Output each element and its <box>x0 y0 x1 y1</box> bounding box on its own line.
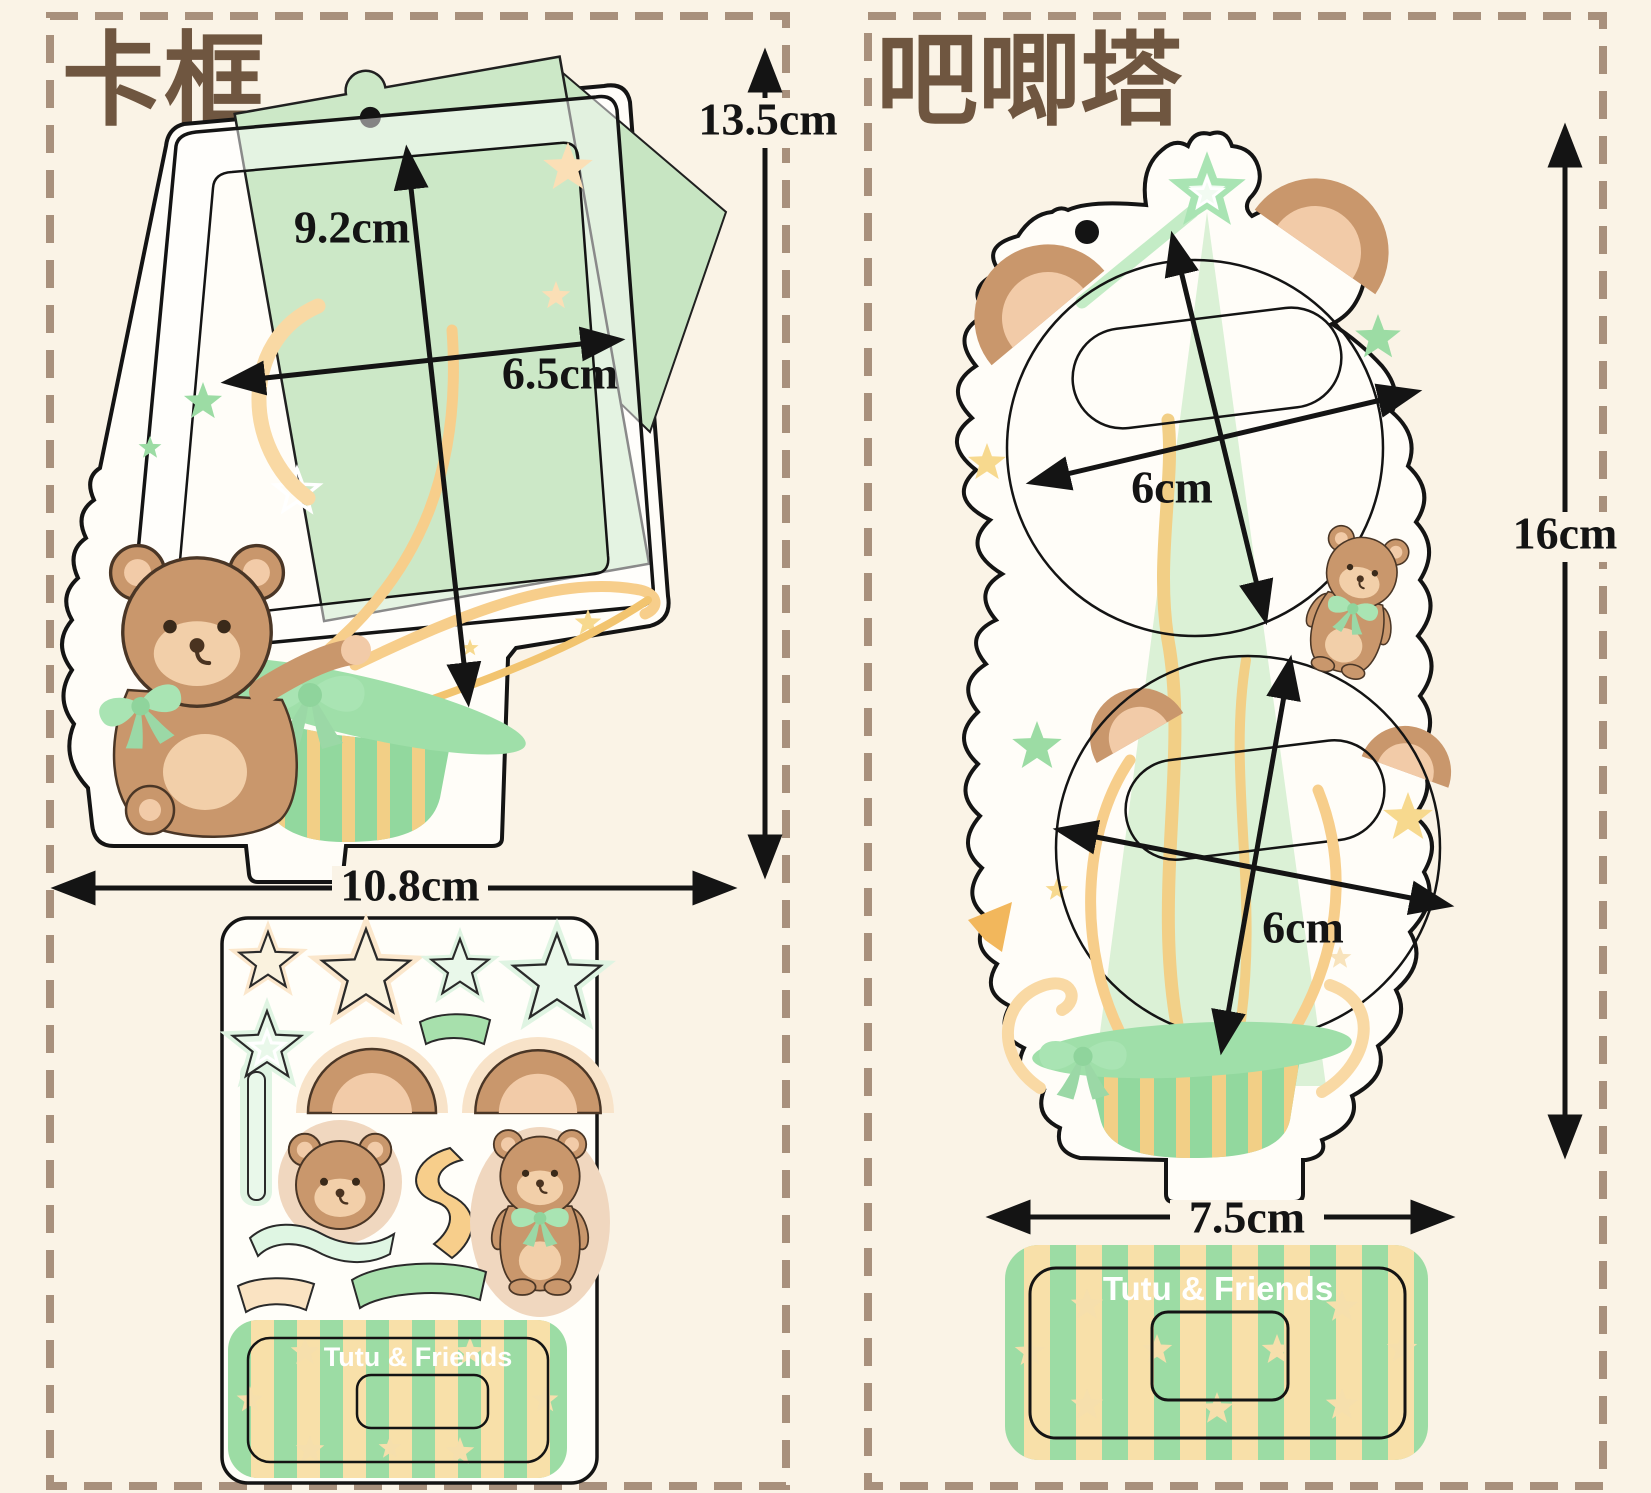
dim-label-bottom-badge: 6cm <box>1262 902 1344 953</box>
diagram-svg: 卡框 <box>0 0 1651 1493</box>
total-height-dimension: 13.5cm <box>698 55 837 872</box>
right-panel-title: 吧唧塔 <box>876 26 1183 139</box>
hanging-hole-icon <box>1075 220 1099 244</box>
dim-label-tower-height: 16cm <box>1513 508 1618 559</box>
dim-label-inner-width: 6.5cm <box>502 348 618 399</box>
dim-label-inner-height: 9.2cm <box>294 202 410 253</box>
sheet-big-bear <box>470 1127 610 1317</box>
product-spec-diagram: 卡框 <box>0 0 1651 1493</box>
dim-label-total-width: 10.8cm <box>340 860 479 911</box>
card-frame-standee: 9.2cm 6.5cm <box>62 37 726 882</box>
dim-label-tower-width: 7.5cm <box>1189 1192 1305 1243</box>
total-width-dimension: 10.8cm <box>58 860 730 912</box>
sticker-sheet: Tutu & Friends <box>219 913 616 1483</box>
dim-label-top-badge: 6cm <box>1131 462 1213 513</box>
dim-label-total-height: 13.5cm <box>698 94 837 145</box>
base-brand-text-left: Tutu & Friends <box>324 1342 513 1372</box>
left-panel: 卡框 <box>50 16 838 1486</box>
base-plate-right: Tutu & Friends <box>1005 1245 1428 1460</box>
base-brand-text-right: Tutu & Friends <box>1103 1270 1333 1307</box>
badge-tower-standee <box>944 133 1464 1203</box>
base-plate-left: Tutu & Friends <box>228 1320 567 1478</box>
tower-width-dimension: 7.5cm <box>993 1192 1448 1243</box>
right-panel: 吧唧塔 <box>868 16 1632 1486</box>
tower-height-dimension: 16cm <box>1498 130 1632 1152</box>
